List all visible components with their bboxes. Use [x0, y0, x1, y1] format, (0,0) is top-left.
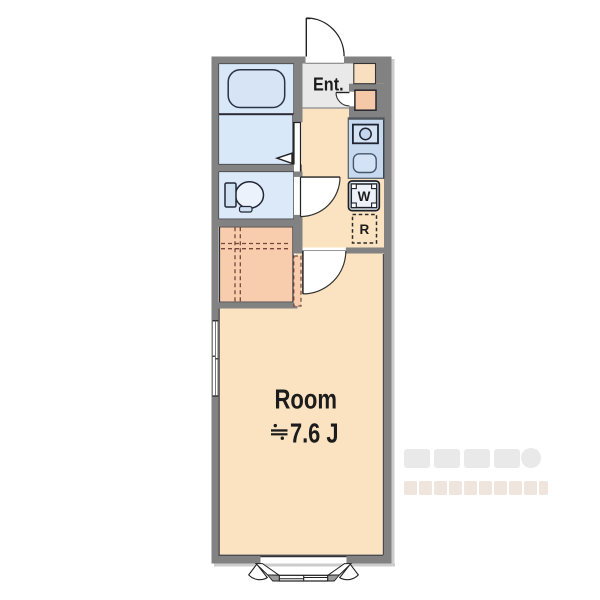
svg-text:Ent.: Ent.	[313, 74, 344, 95]
svg-text:R: R	[360, 222, 370, 237]
svg-text:7.6 J: 7.6 J	[290, 418, 339, 449]
svg-text:W: W	[358, 189, 371, 204]
svg-text:Room: Room	[275, 384, 338, 415]
